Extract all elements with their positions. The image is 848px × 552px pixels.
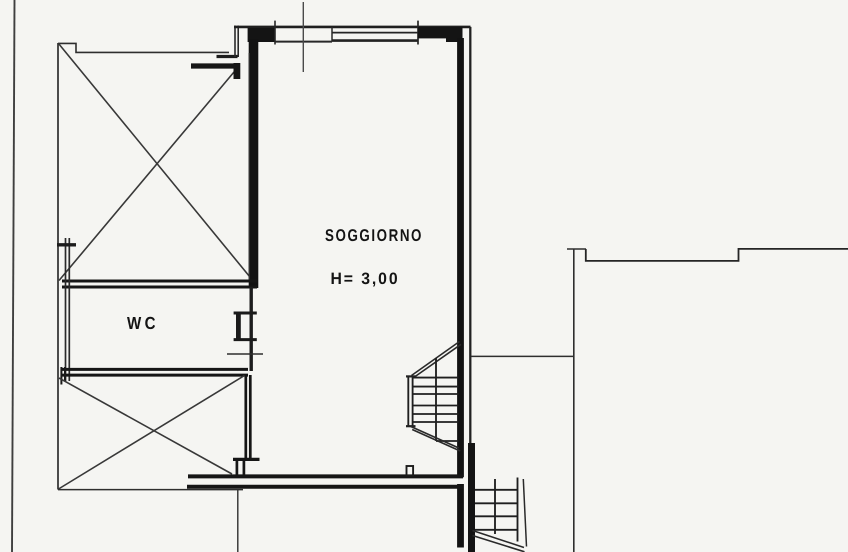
svg-text:SOGGIORNO: SOGGIORNO: [325, 226, 423, 245]
svg-text:WC: WC: [127, 313, 159, 333]
svg-text:H= 3,00: H= 3,00: [331, 270, 400, 288]
